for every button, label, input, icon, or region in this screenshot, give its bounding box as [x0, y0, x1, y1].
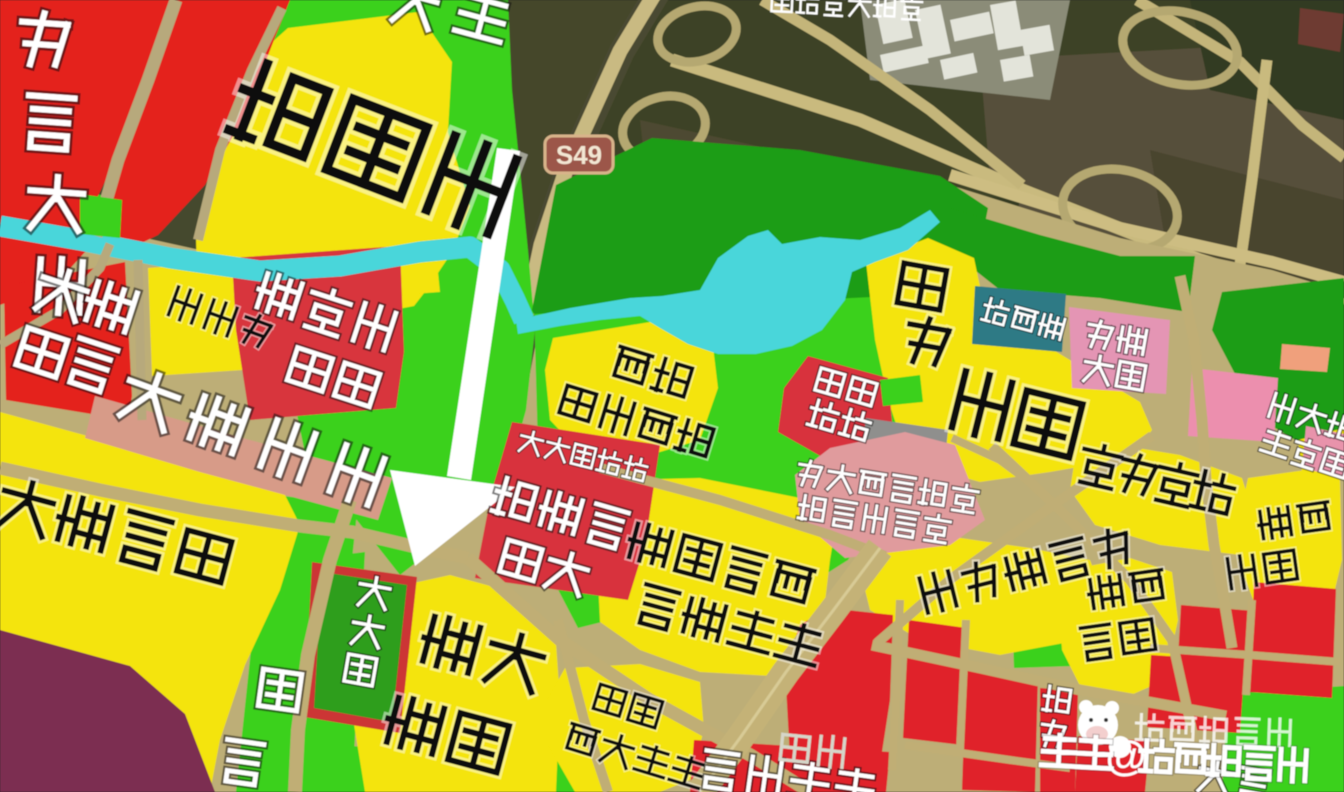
- svg-text:@: @: [1106, 732, 1147, 779]
- svg-text:S49: S49: [556, 140, 602, 170]
